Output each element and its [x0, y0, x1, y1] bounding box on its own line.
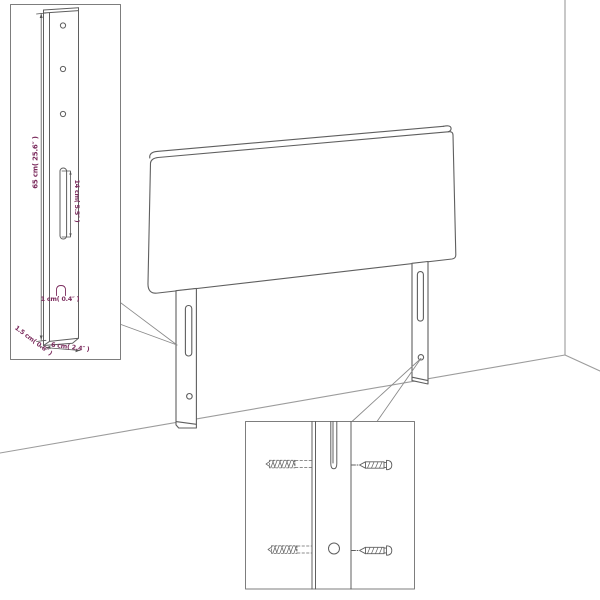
inset-box — [11, 5, 121, 360]
dimension-label-thickness: 1 cm( 0.4″ ) — [20, 297, 100, 306]
headboard-left-leg — [176, 288, 196, 428]
dimension-label-slot-height: 14 cm( 5.5″ ) — [69, 161, 79, 241]
callout-lines-leg-inset — [121, 303, 177, 345]
inset-box — [246, 422, 415, 590]
screw-detail-inset — [246, 422, 415, 590]
leg-dimension-inset — [11, 5, 121, 360]
headboard-right-leg — [412, 262, 428, 385]
headboard-panel — [148, 126, 456, 293]
diagram-canvas: 65 cm( 25.6″ ) 14 cm( 5.5″ ) 1 cm( 0.4″ … — [0, 0, 600, 600]
dimension-label-height: 65 cm( 25.6″ ) — [33, 113, 44, 213]
